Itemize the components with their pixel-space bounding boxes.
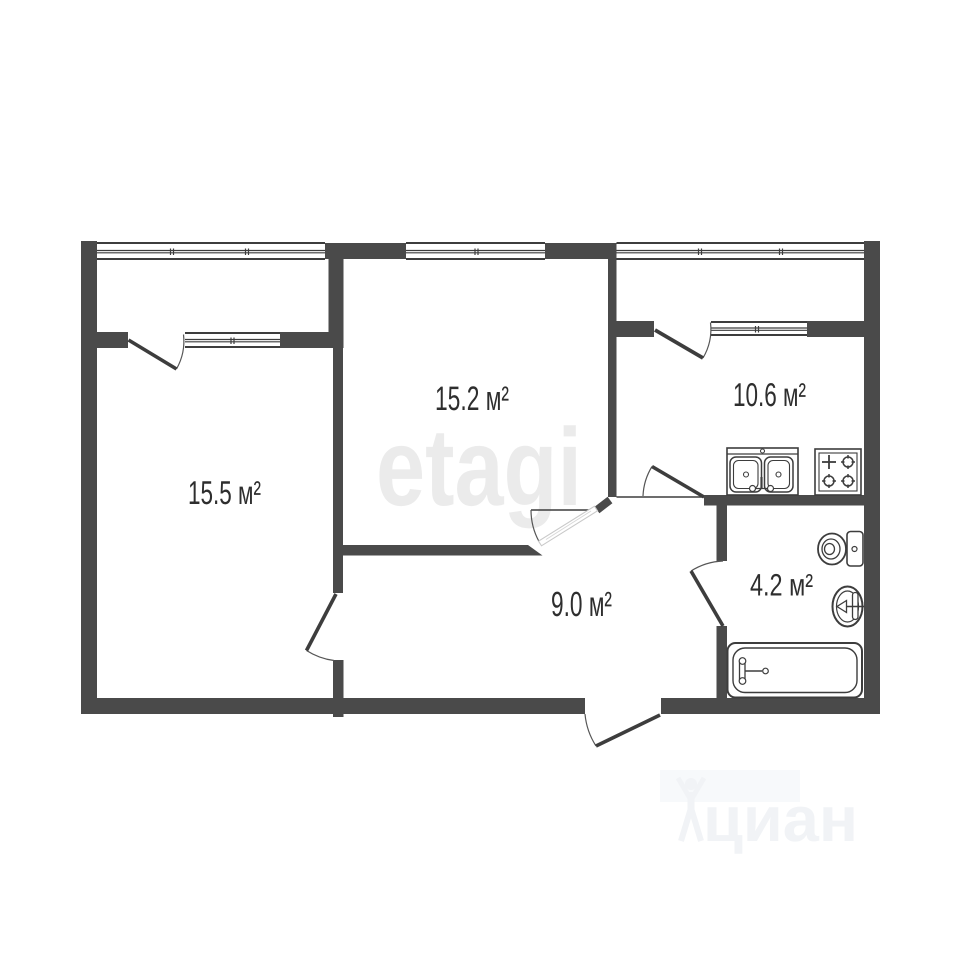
svg-text:9.0 м²: 9.0 м² [551, 585, 612, 624]
svg-text:10.6 м²: 10.6 м² [733, 376, 806, 413]
svg-text:4.2 м²: 4.2 м² [750, 568, 813, 603]
svg-text:15.2 м²: 15.2 м² [435, 380, 509, 418]
svg-text:15.5 м²: 15.5 м² [188, 474, 261, 511]
svg-text:циан: циан [703, 783, 858, 855]
